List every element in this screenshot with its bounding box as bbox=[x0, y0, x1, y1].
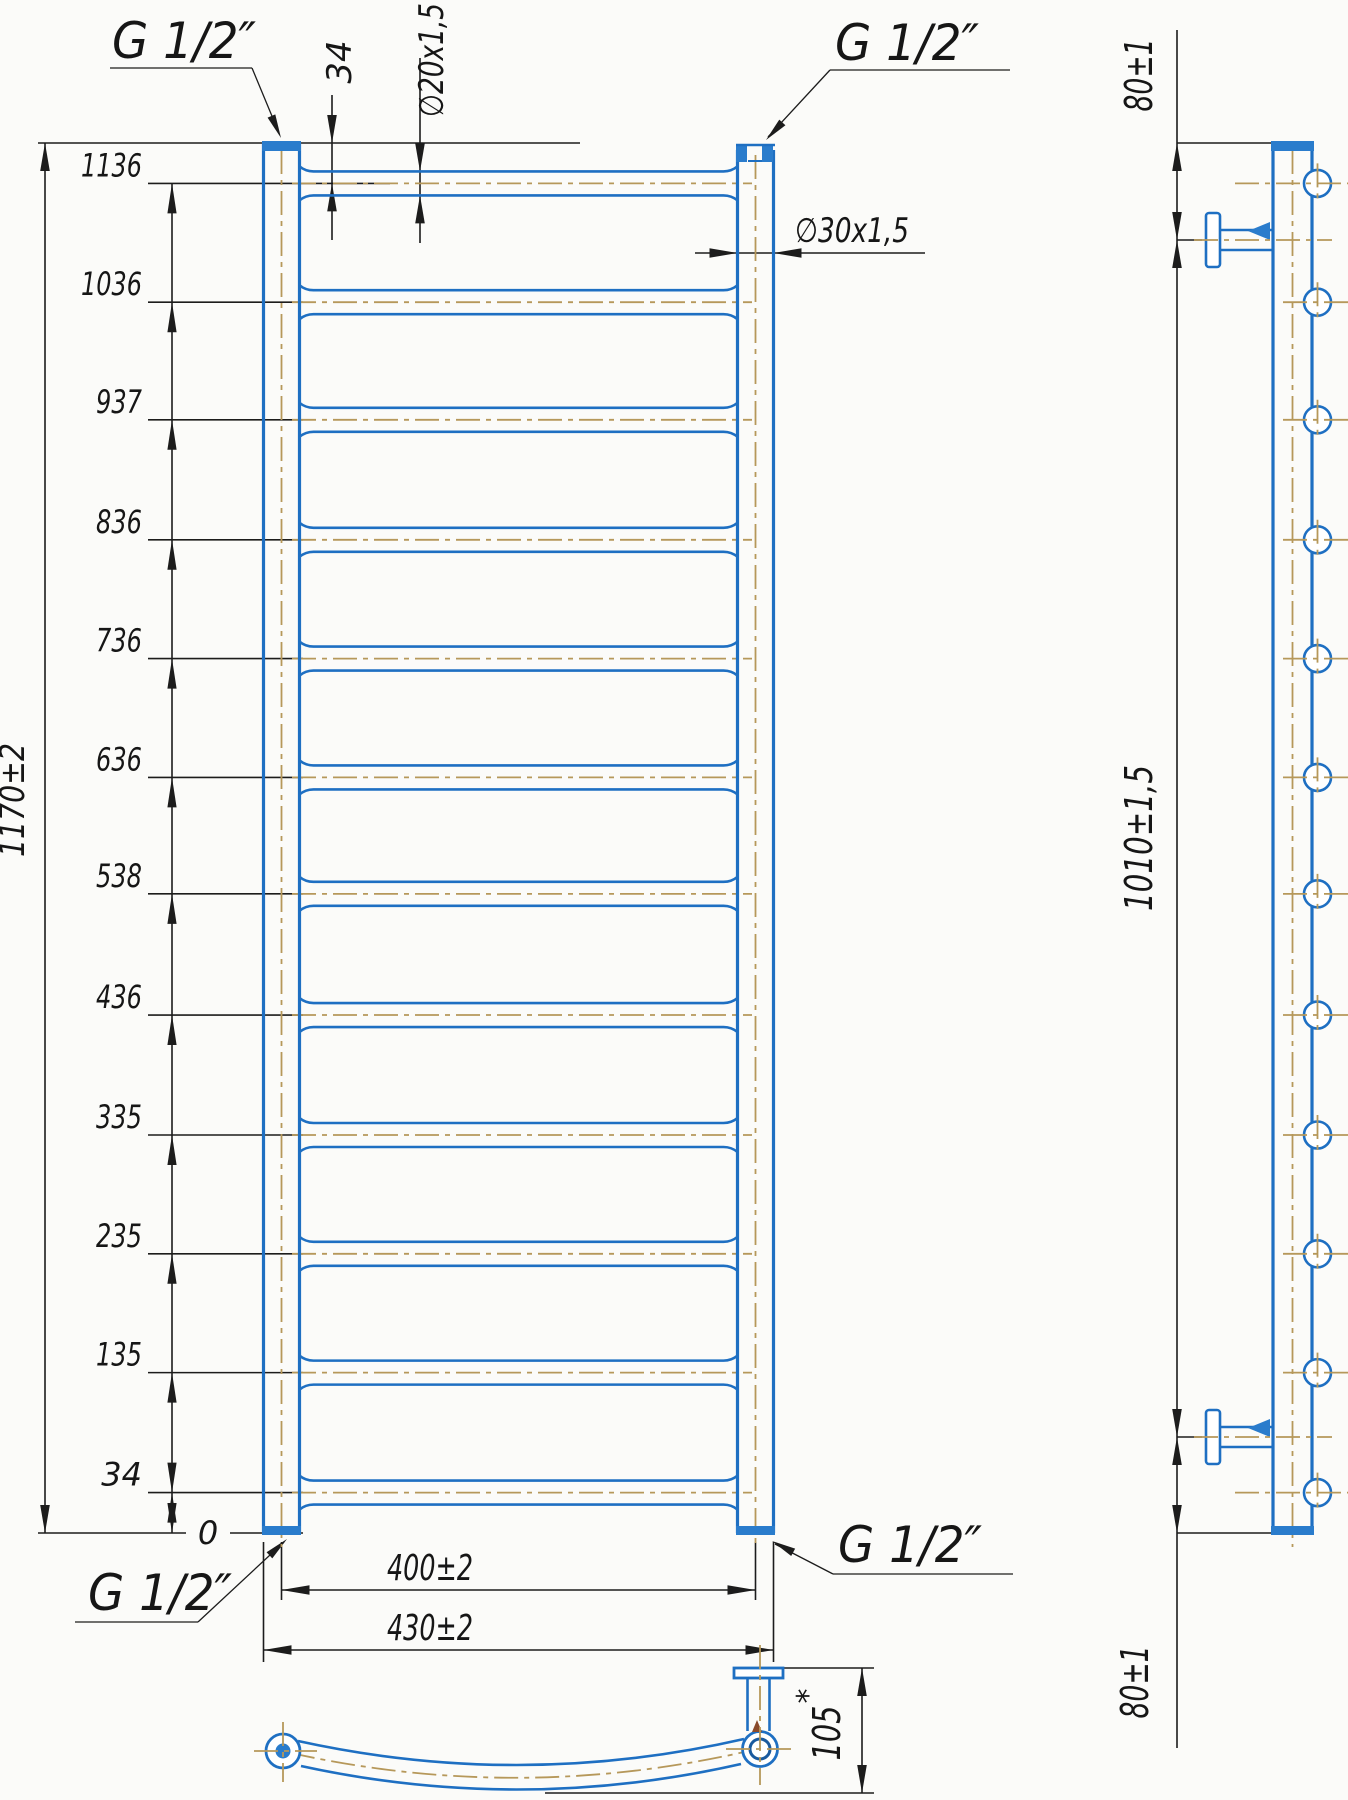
leader-line bbox=[252, 68, 279, 133]
rung-end-boss bbox=[1304, 764, 1331, 791]
dim-arrow bbox=[857, 1668, 867, 1696]
top-left-cap bbox=[262, 141, 301, 151]
thread-label-top-left: G 1/2″ bbox=[112, 12, 256, 70]
dim-arrow bbox=[1172, 143, 1182, 171]
towel-radiator-drawing: 3413523533543653863673683693710361136011… bbox=[0, 0, 1348, 1800]
chain-arrow-up bbox=[167, 894, 176, 924]
dim-arrow bbox=[40, 1505, 50, 1533]
dim-arrow bbox=[746, 1645, 774, 1655]
side-top-offset-label: 80±1 bbox=[1117, 39, 1161, 112]
rung-bottom-edge bbox=[300, 1147, 738, 1152]
wall-bracket-flange bbox=[1206, 1410, 1220, 1464]
dim-arrow bbox=[415, 143, 425, 171]
side-bottom-cap bbox=[1271, 1526, 1314, 1535]
rung-bottom-edge bbox=[300, 1385, 738, 1390]
rung-bottom-edge bbox=[300, 789, 738, 794]
rung-bottom-edge bbox=[300, 906, 738, 911]
height-dim-label: 538 bbox=[96, 857, 142, 895]
rung-top-edge bbox=[300, 166, 738, 171]
riser-bore bbox=[750, 1739, 770, 1759]
rung-top-edge bbox=[300, 877, 738, 882]
dim-arrow bbox=[1172, 1437, 1182, 1465]
height-dim-label: 1136 bbox=[81, 146, 142, 184]
bottom-view-flange bbox=[734, 1668, 783, 1678]
chain-arrow-up bbox=[167, 1373, 176, 1403]
rung-top-edge bbox=[300, 285, 738, 290]
rung-end-boss bbox=[1304, 1240, 1331, 1267]
overall-height-label: 1170±2 bbox=[0, 743, 33, 857]
dim-arrow bbox=[327, 183, 337, 211]
chain-arrow-down bbox=[167, 1503, 176, 1533]
rung-bottom-edge bbox=[300, 314, 738, 319]
side-span-label: 1010±1,5 bbox=[1117, 765, 1161, 911]
rung-bottom-edge bbox=[300, 552, 738, 557]
dim-arrow bbox=[282, 1585, 310, 1595]
leader-line bbox=[198, 1542, 284, 1622]
rung-top-edge bbox=[300, 760, 738, 765]
rung-bottom-edge bbox=[300, 1266, 738, 1271]
thread-fitting bbox=[762, 144, 773, 162]
bow-centerline bbox=[291, 1750, 753, 1778]
leader-arrow bbox=[766, 120, 785, 140]
rung-end-boss bbox=[1304, 1002, 1331, 1029]
dim-arrow bbox=[1172, 1409, 1182, 1437]
thread-label-top-right: G 1/2″ bbox=[835, 14, 979, 72]
chain-arrow-down bbox=[167, 1463, 176, 1493]
rung-end-boss bbox=[1304, 1479, 1331, 1506]
height-dim-label: 34 bbox=[101, 1456, 142, 1494]
chain-arrow-up bbox=[167, 1493, 176, 1523]
bow-top-edge bbox=[298, 1739, 744, 1765]
chain-arrow-up bbox=[167, 1135, 176, 1165]
riser-section bbox=[743, 1732, 778, 1767]
chain-arrow-up bbox=[167, 302, 176, 332]
dim-arrow bbox=[40, 143, 50, 171]
riser-dia-label: ∅30x1,5 bbox=[795, 211, 909, 251]
height-dim-label: 1036 bbox=[81, 265, 142, 303]
rung-top-edge bbox=[300, 998, 738, 1003]
rung-top-edge bbox=[300, 642, 738, 647]
rung-end-boss bbox=[1304, 170, 1331, 197]
bottom-right-cap bbox=[736, 1526, 775, 1535]
top-offset-label: 34 bbox=[320, 40, 360, 83]
bow-bottom-edge bbox=[301, 1764, 741, 1790]
chain-arrow-up bbox=[167, 1015, 176, 1045]
height-dim-label: 836 bbox=[96, 503, 142, 541]
leader-arrow bbox=[268, 114, 281, 138]
rung-bottom-edge bbox=[300, 1505, 738, 1510]
chain-arrow-up bbox=[167, 540, 176, 570]
axis-width-label: 400±2 bbox=[387, 1548, 473, 1589]
dim-arrow bbox=[264, 1645, 292, 1655]
dim-arrow bbox=[1172, 212, 1182, 240]
rung-bottom-edge bbox=[300, 671, 738, 676]
rung-end-boss bbox=[1304, 645, 1331, 672]
rung-top-edge bbox=[300, 1237, 738, 1242]
stem-joint-mark bbox=[752, 1720, 762, 1732]
crosshairs-layer bbox=[254, 163, 1348, 1785]
rung-bottom-edge bbox=[300, 195, 738, 200]
depth-note-mark: * bbox=[791, 1689, 826, 1704]
leader-line bbox=[775, 1544, 833, 1574]
height-dim-label: 335 bbox=[96, 1098, 142, 1136]
rung-top-edge bbox=[300, 523, 738, 528]
dim-arrow bbox=[857, 1765, 867, 1793]
leader-line bbox=[768, 70, 830, 137]
height-dim-label: 736 bbox=[96, 622, 142, 660]
rung-end-boss bbox=[1304, 1122, 1331, 1149]
dimension-lines-layer bbox=[38, 30, 1271, 1793]
chain-arrow-up bbox=[167, 420, 176, 450]
thread-label-bottom-left: G 1/2″ bbox=[88, 1564, 232, 1622]
depth-label: 105 bbox=[805, 1706, 849, 1761]
thread-label-bottom-right: G 1/2″ bbox=[838, 1516, 982, 1574]
dim-arrow bbox=[710, 248, 738, 258]
chain-arrow-up bbox=[167, 1254, 176, 1284]
side-top-cap bbox=[1271, 141, 1314, 151]
leader-arrow bbox=[267, 1539, 287, 1558]
dim-arrow bbox=[415, 195, 425, 223]
rung-end-boss bbox=[1304, 406, 1331, 433]
leader-arrow bbox=[772, 1541, 795, 1556]
pipework-layer bbox=[262, 141, 1331, 1790]
rung-top-edge bbox=[300, 1118, 738, 1123]
rung-bottom-edge bbox=[300, 1027, 738, 1032]
rung-top-edge bbox=[300, 403, 738, 408]
bracket-weld bbox=[1248, 1419, 1270, 1437]
rung-top-edge bbox=[300, 1476, 738, 1481]
bracket-weld bbox=[1248, 222, 1270, 240]
height-dim-label: 235 bbox=[96, 1217, 142, 1255]
dim-arrow bbox=[327, 115, 337, 143]
rung-top-edge bbox=[300, 1356, 738, 1361]
chain-arrow-up bbox=[167, 777, 176, 807]
chain-arrow-up bbox=[167, 659, 176, 689]
overall-width-label: 430±2 bbox=[387, 1608, 473, 1649]
bow-left-end bbox=[266, 1734, 300, 1768]
wall-bracket-flange bbox=[1206, 213, 1220, 267]
dim-arrow bbox=[774, 248, 802, 258]
side-bottom-offset-label: 80±1 bbox=[1113, 1646, 1157, 1719]
labels-layer: 3413523533543653863673683693710361136011… bbox=[0, 3, 1161, 1761]
dim-arrow bbox=[1172, 240, 1182, 268]
height-dim-label: 436 bbox=[96, 978, 142, 1016]
dim-arrow bbox=[1172, 1505, 1182, 1533]
chain-arrow-up bbox=[167, 183, 176, 213]
rung-end-boss bbox=[1304, 526, 1331, 553]
bottom-left-cap bbox=[262, 1526, 301, 1535]
zero-label: 0 bbox=[198, 1514, 218, 1552]
centerlines-layer bbox=[282, 150, 1293, 1778]
rung-end-boss bbox=[1304, 289, 1331, 316]
dim-arrow bbox=[728, 1585, 756, 1595]
technical-drawing-page: 3413523533543653863673683693710361136011… bbox=[0, 0, 1348, 1800]
thread-fitting bbox=[736, 144, 747, 162]
height-dim-label: 135 bbox=[96, 1336, 142, 1374]
height-dim-label: 636 bbox=[96, 740, 142, 778]
rung-bottom-edge bbox=[300, 432, 738, 437]
bow-left-bore bbox=[276, 1744, 291, 1759]
height-dim-label: 937 bbox=[96, 383, 142, 421]
rung-end-boss bbox=[1304, 880, 1331, 907]
rung-dia-label: ∅20x1,5 bbox=[412, 3, 452, 117]
rung-end-boss bbox=[1304, 1359, 1331, 1386]
